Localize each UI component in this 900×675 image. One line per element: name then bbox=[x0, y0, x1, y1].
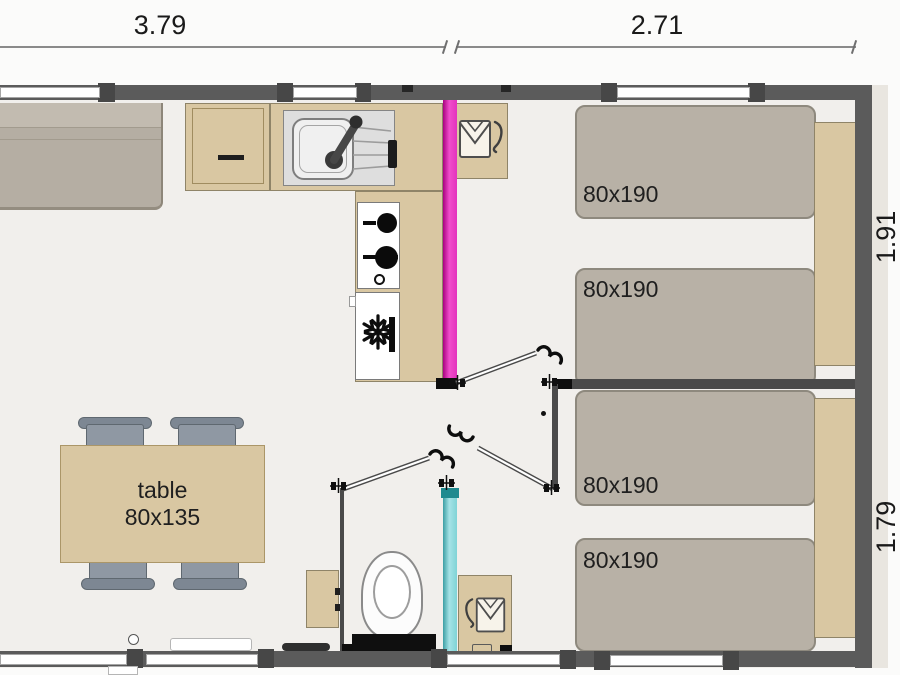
hinge-icon bbox=[449, 374, 466, 391]
tap-handle-icon bbox=[388, 140, 397, 168]
sofa bbox=[0, 103, 163, 210]
stove-grate bbox=[363, 221, 376, 225]
hinge-icon bbox=[541, 373, 558, 390]
stove-knob bbox=[374, 274, 385, 285]
table-name: table bbox=[61, 477, 264, 504]
entry-step bbox=[108, 666, 138, 675]
sofa-seam bbox=[0, 139, 161, 140]
hanger-shirt-icon bbox=[463, 587, 507, 641]
hinge-icon bbox=[543, 479, 560, 496]
dimension-width-left: 3.79 bbox=[95, 8, 225, 42]
dimension-width-right: 2.71 bbox=[592, 8, 722, 42]
bed: 80x190 bbox=[575, 268, 816, 386]
dimension-height-lower: 1.79 bbox=[869, 487, 899, 567]
sofa-backrest bbox=[0, 103, 161, 128]
drawer-handle bbox=[218, 155, 244, 160]
hinge-icon bbox=[330, 477, 347, 494]
dimension-tick bbox=[851, 40, 857, 54]
window bbox=[146, 654, 258, 665]
side-shelf bbox=[306, 570, 339, 628]
bathroom-wall-left bbox=[340, 488, 344, 651]
bed-size-label: 80x190 bbox=[583, 181, 658, 208]
wall-right bbox=[855, 85, 872, 668]
window bbox=[610, 655, 723, 666]
dimension-tick bbox=[442, 40, 448, 54]
window-sill-frame bbox=[170, 638, 252, 651]
burner-icon bbox=[377, 213, 397, 233]
window-endcap bbox=[560, 650, 576, 669]
table-size: 80x135 bbox=[61, 504, 264, 531]
window-endcap bbox=[601, 83, 617, 102]
window bbox=[0, 87, 100, 98]
bed-size-label: 80x190 bbox=[583, 472, 658, 499]
table-label: table 80x135 bbox=[61, 477, 264, 531]
kitchen-cabinet-inner bbox=[192, 108, 264, 184]
door-handle-icon bbox=[128, 634, 139, 645]
window-endcap bbox=[723, 651, 739, 670]
fridge-handle bbox=[349, 296, 356, 307]
bedroom-divider-wall bbox=[570, 379, 855, 389]
stove-grate bbox=[389, 255, 398, 259]
floorplan-canvas: 80x190 80x190 80x190 80x190 table 80x135 bbox=[0, 0, 900, 675]
chair-back bbox=[173, 578, 247, 590]
bed: 80x190 bbox=[575, 538, 816, 652]
outside-right-strip bbox=[872, 85, 888, 668]
window-endcap bbox=[594, 651, 610, 670]
window bbox=[0, 654, 127, 665]
bed-size-label: 80x190 bbox=[583, 276, 658, 303]
hinge-icon bbox=[438, 474, 455, 491]
toilet-bowl bbox=[373, 565, 411, 619]
wall-tick bbox=[402, 85, 413, 92]
hallway-dot bbox=[541, 411, 546, 416]
toilet bbox=[361, 551, 423, 639]
bed: 80x190 bbox=[575, 105, 816, 219]
bed-size-label: 80x190 bbox=[583, 547, 658, 574]
headboard-shelf bbox=[814, 398, 857, 638]
window bbox=[293, 87, 357, 98]
dimension-line bbox=[0, 46, 446, 48]
window-endcap bbox=[258, 649, 274, 668]
window-endcap bbox=[98, 83, 115, 102]
faucet-icon bbox=[320, 108, 368, 170]
dining-table: table 80x135 bbox=[60, 445, 265, 563]
kitchen-cabinet bbox=[185, 103, 270, 191]
dimension-height-upper: 1.91 bbox=[869, 197, 899, 277]
divider-wall-stub bbox=[556, 379, 572, 389]
bed: 80x190 bbox=[575, 390, 816, 506]
window bbox=[617, 87, 750, 98]
stove-grate bbox=[363, 255, 378, 259]
vent bbox=[282, 643, 330, 651]
headboard-shelf bbox=[814, 122, 857, 366]
window bbox=[447, 654, 560, 665]
window-endcap bbox=[431, 649, 447, 668]
window-endcap bbox=[748, 83, 765, 102]
partition-wall-cyan bbox=[443, 497, 457, 651]
wall-tick bbox=[501, 85, 511, 92]
hanger-shirt-icon bbox=[457, 109, 505, 167]
fridge-bar bbox=[389, 317, 395, 352]
window-endcap bbox=[277, 83, 293, 102]
window-endcap bbox=[355, 83, 371, 102]
chair-back bbox=[81, 578, 155, 590]
dimension-line bbox=[456, 46, 856, 48]
